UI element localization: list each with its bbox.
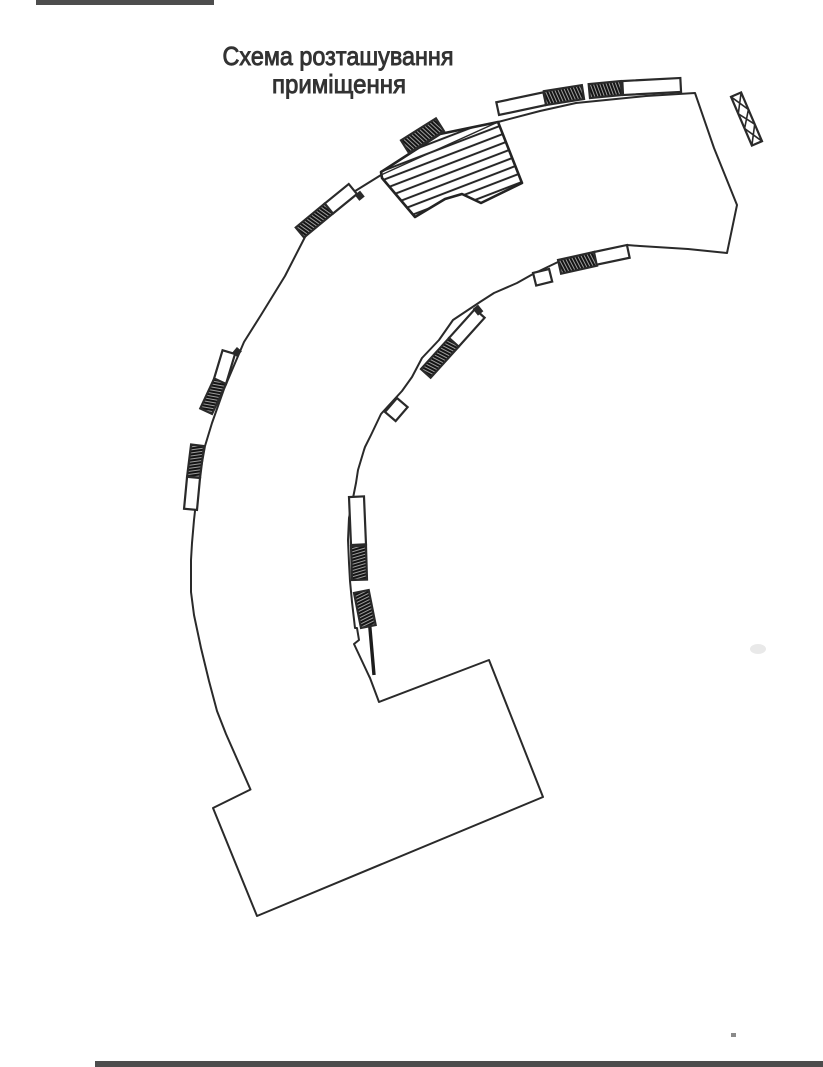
svg-text:приміщення: приміщення bbox=[272, 69, 406, 99]
svg-text:Схема розташування: Схема розташування bbox=[223, 41, 454, 71]
